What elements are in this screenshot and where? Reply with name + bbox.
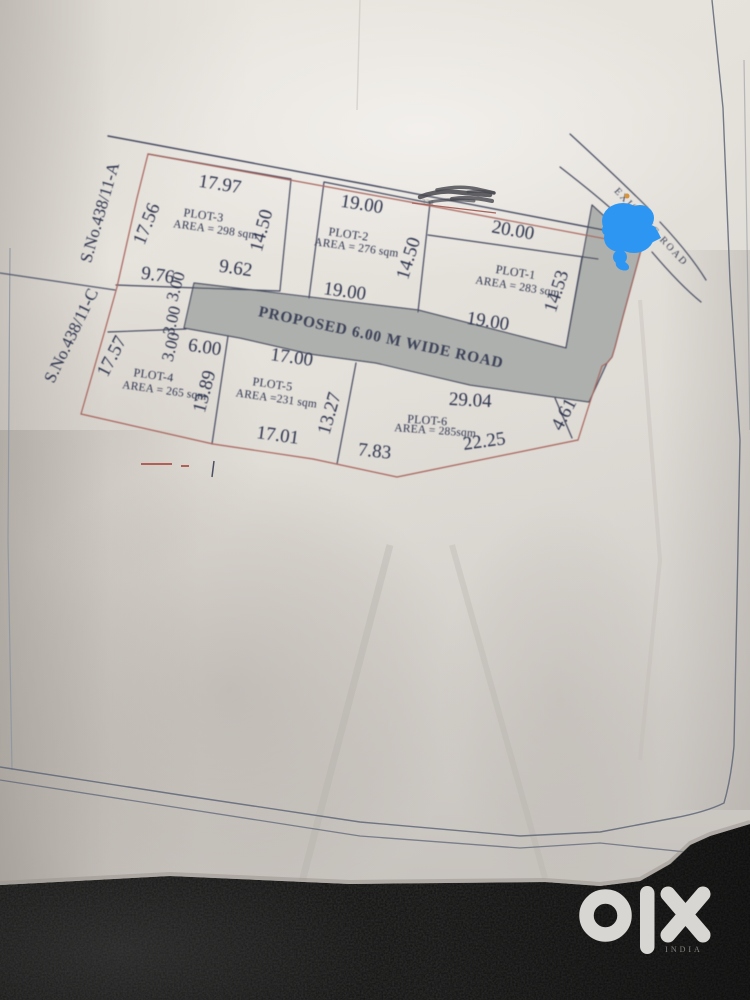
svg-text:29.04: 29.04	[448, 389, 492, 412]
svg-text:INDIA: INDIA	[665, 945, 703, 954]
svg-text:7.83: 7.83	[357, 439, 392, 463]
